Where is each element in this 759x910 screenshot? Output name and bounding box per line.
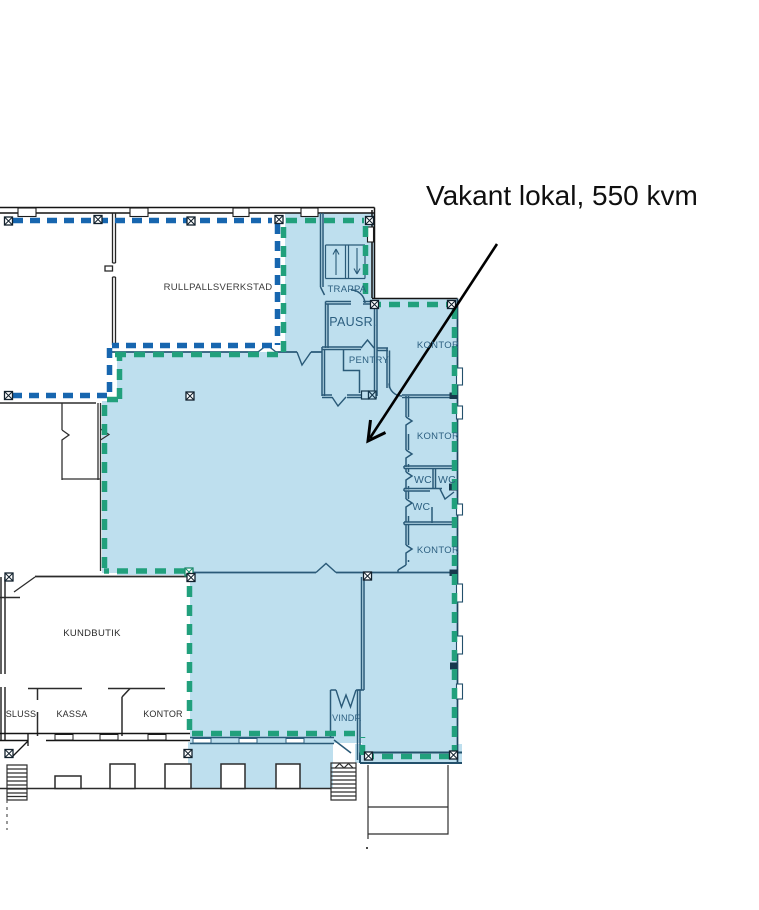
svg-text:KONTOR: KONTOR [417, 340, 459, 351]
svg-text:KASSA: KASSA [56, 709, 87, 719]
svg-text:TRAPPA: TRAPPA [327, 284, 366, 295]
svg-text:PAUSR.: PAUSR. [329, 315, 376, 329]
svg-text:KUNDBUTIK: KUNDBUTIK [63, 628, 121, 639]
svg-text:PENTRY: PENTRY [349, 355, 390, 366]
svg-text:VINDF.: VINDF. [332, 713, 362, 723]
svg-text:KONTOR: KONTOR [417, 545, 459, 556]
svg-text:SLUSS: SLUSS [6, 709, 37, 719]
svg-text:Vakant lokal, 550 kvm: Vakant lokal, 550 kvm [426, 180, 698, 211]
svg-text:WC: WC [438, 474, 456, 486]
svg-text:KONTOR: KONTOR [417, 431, 459, 442]
svg-text:KONTOR: KONTOR [143, 709, 183, 719]
svg-text:WC: WC [414, 474, 432, 486]
svg-text:RULLPALLSVERKSTAD: RULLPALLSVERKSTAD [164, 282, 273, 293]
svg-text:WC.: WC. [412, 501, 433, 513]
